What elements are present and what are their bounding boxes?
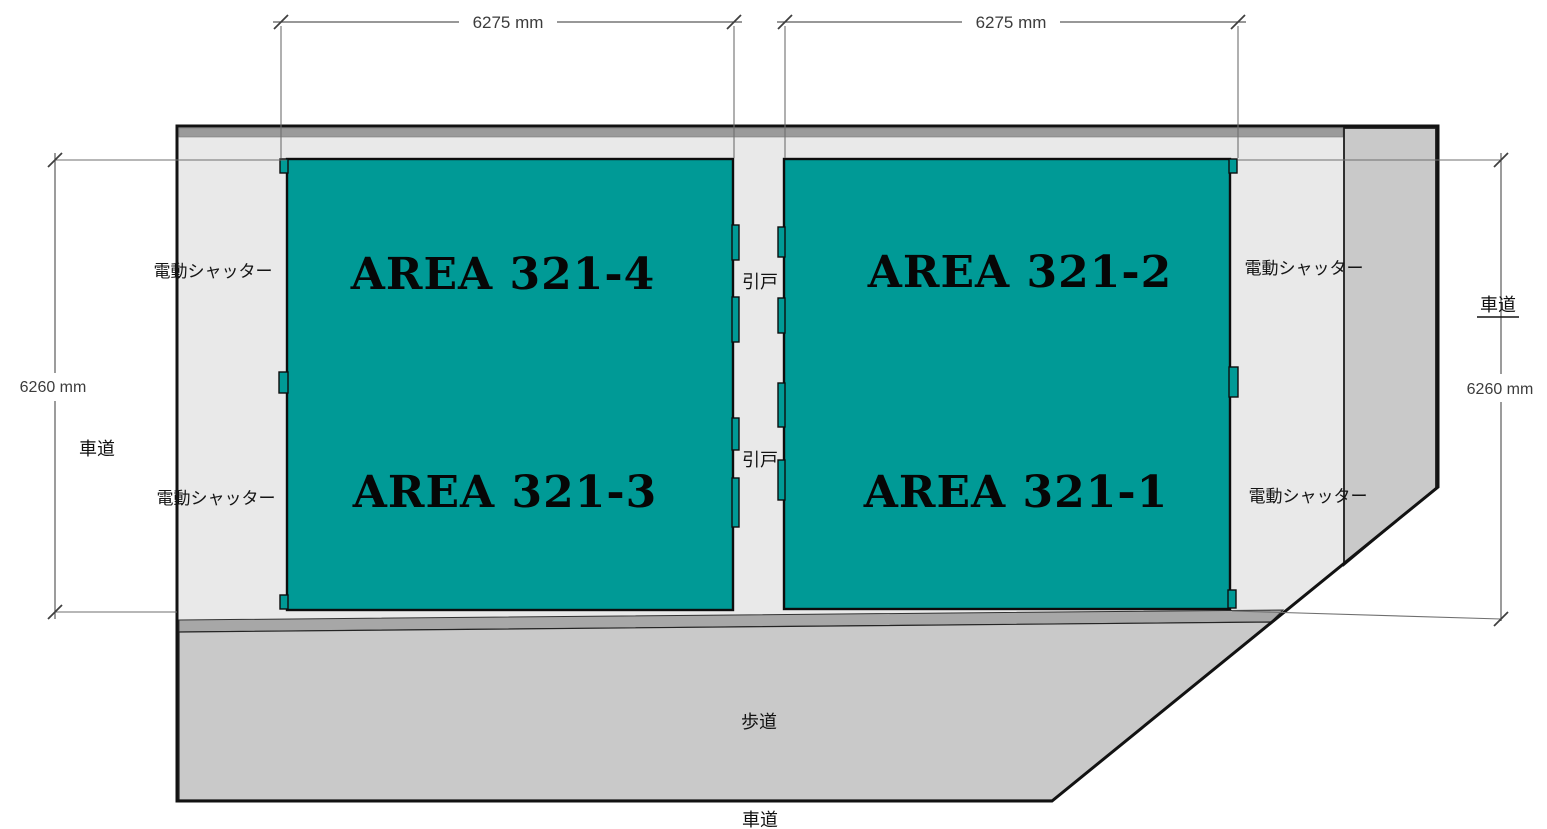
door-jamb	[778, 460, 785, 500]
area-block-west	[287, 159, 733, 610]
shutter-label-east-upper: 電動シャッター	[1245, 259, 1364, 278]
dimension-label-top-west: 6275 mm	[473, 13, 544, 32]
top-wall-band	[179, 128, 1343, 137]
dimension-label-top-east: 6275 mm	[976, 13, 1047, 32]
shutter-jamb	[280, 595, 288, 609]
door-jamb	[732, 418, 739, 450]
dimension-label-left: 6260 mm	[20, 379, 87, 396]
sliding-door-lower-label: 引戸	[742, 450, 778, 470]
roadway-south-label: 車道	[742, 810, 778, 829]
door-jamb	[732, 225, 739, 260]
area-label-321-4: AREA 321-4	[350, 249, 655, 300]
shutter-label-east-lower: 電動シャッター	[1249, 487, 1368, 506]
area-label-321-2: AREA 321-2	[867, 247, 1172, 298]
roadway-east-label: 車道	[1480, 295, 1516, 315]
sidewalk-region	[179, 622, 1271, 800]
area-label-321-3: AREA 321-3	[352, 467, 657, 518]
door-jamb	[732, 478, 739, 527]
dimension-label-right: 6260 mm	[1467, 381, 1534, 398]
sliding-door-upper-label: 引戸	[742, 272, 778, 292]
door-jamb	[778, 383, 785, 427]
shutter-label-west-lower: 電動シャッター	[157, 489, 276, 508]
shutter-jamb	[279, 372, 288, 393]
sidewalk-label: 歩道	[741, 712, 777, 732]
door-jamb	[732, 297, 739, 342]
shutter-label-west-upper: 電動シャッター	[154, 262, 273, 281]
door-jamb	[778, 298, 785, 333]
shutter-jamb	[1229, 367, 1238, 397]
floor-plan-drawing: 6275 mm 6275 mm 6260 mm 車道 6260 mm 車道 AR…	[0, 0, 1547, 829]
shutter-jamb	[1229, 159, 1237, 173]
floor-plan-canvas: 6275 mm 6275 mm 6260 mm 車道 6260 mm 車道 AR…	[0, 0, 1547, 829]
area-label-321-1: AREA 321-1	[863, 467, 1168, 518]
shutter-jamb	[280, 159, 288, 173]
shutter-jamb	[1228, 590, 1236, 608]
door-jamb	[778, 227, 785, 257]
roadway-west-label: 車道	[79, 439, 115, 459]
area-block-east	[784, 159, 1230, 609]
